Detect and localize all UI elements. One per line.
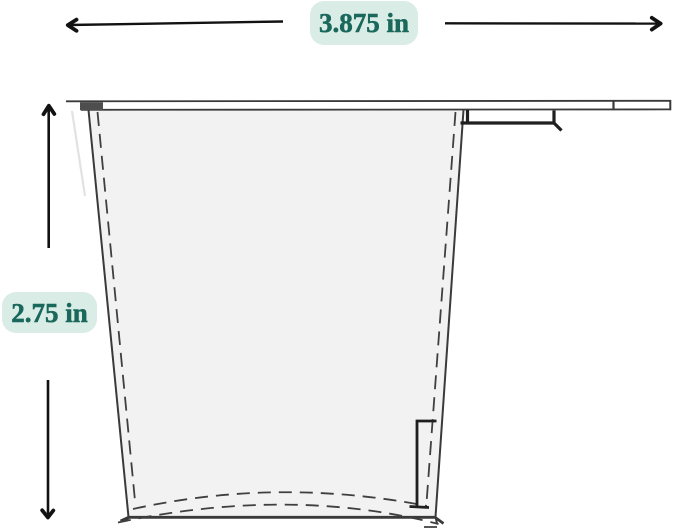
svg-text:3.875 in: 3.875 in <box>319 8 409 38</box>
svg-text:2.75 in: 2.75 in <box>11 298 88 328</box>
